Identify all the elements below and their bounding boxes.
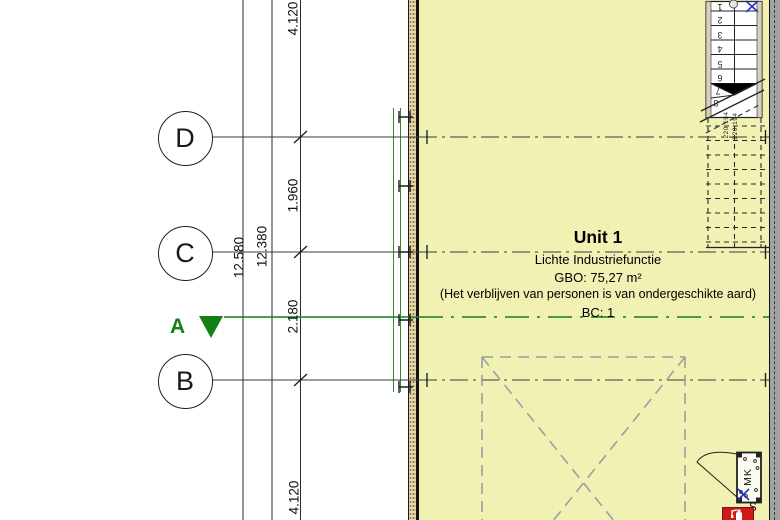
grid-label-B: B [176, 366, 194, 397]
unit-gbo: GBO: 75,27 m² [378, 269, 780, 287]
tread-number-6: 6 [714, 72, 726, 83]
tread-number-8: 8 [710, 97, 722, 108]
dimension-lines [243, 0, 301, 520]
section-direction-triangle [199, 316, 223, 338]
meter-cupboard-label: MK [742, 456, 754, 498]
grid-bubble-D: D [158, 111, 213, 166]
grid-label-C: C [175, 238, 195, 269]
tread-number-2: 2 [714, 14, 726, 25]
tread-number-3: 3 [714, 29, 726, 40]
tread-number-4: 4 [714, 43, 726, 54]
dim-c-b: 2.180 [286, 285, 301, 349]
tread-number-7: 7 [712, 85, 724, 96]
section-label-a: A [170, 315, 185, 339]
grid-label-D: D [175, 123, 195, 154]
unit-title: Unit 1 [378, 227, 780, 248]
grid-bubble-B: B [158, 354, 213, 409]
dim-d-c: 1.960 [286, 164, 301, 228]
dim-total-left: 12.580 [232, 226, 247, 290]
unit-bc: BC: 1 [378, 304, 780, 322]
tread-number-1: 1 [714, 1, 726, 12]
floor-plan-canvas: D C B A 4.120 1.960 2.180 4.120 12.580 1… [0, 0, 780, 520]
grid-bubble-C: C [158, 226, 213, 281]
stair-dim-1: 220 194 [723, 102, 731, 148]
fire-extinguisher-glyph [723, 508, 753, 520]
dim-top: 4.120 [286, 0, 301, 51]
unit-function: Lichte Industriefunctie [378, 251, 780, 269]
dim-bottom: 4.120 [287, 466, 302, 520]
stair-dim-2: 220 194 [732, 103, 740, 149]
fire-extinguisher-icon [722, 507, 754, 520]
unit-annotation: Unit 1 Lichte Industriefunctie GBO: 75,2… [378, 227, 780, 321]
tread-number-5: 5 [714, 58, 726, 69]
dim-total-right: 12.380 [255, 215, 270, 279]
unit-note: (Het verblijven van personen is van onde… [378, 286, 780, 304]
